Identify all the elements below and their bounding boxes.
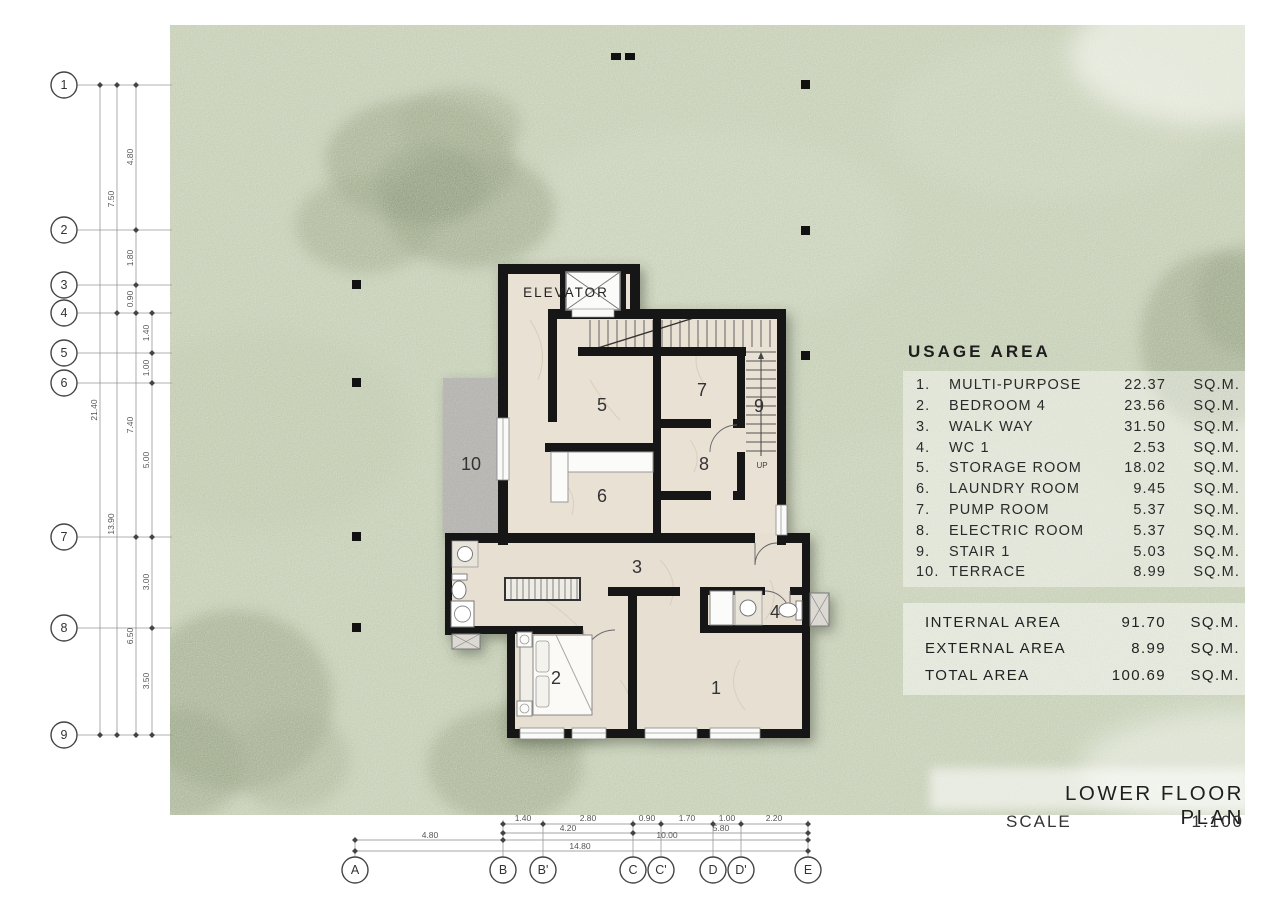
room-unit: SQ.M. <box>1166 399 1250 414</box>
row-number: 5. <box>903 461 949 476</box>
room-name: STORAGE ROOM <box>949 461 1102 476</box>
room-label-10: 10 <box>461 454 481 474</box>
dim-bottom-2-80: 2.80 <box>580 813 597 823</box>
usage-row-6: 6. LAUNDRY ROOM 9.45 SQ.M. <box>903 482 1250 497</box>
area-totals-panel: INTERNAL AREA 91.70 SQ.M. EXTERNAL AREA … <box>903 603 1250 695</box>
grid-label-a: A <box>351 863 360 877</box>
room-unit: SQ.M. <box>1166 441 1250 456</box>
room-unit: SQ.M. <box>1166 565 1250 580</box>
row-number: 8. <box>903 524 949 539</box>
dim-bottom-4-20: 4.20 <box>560 823 577 833</box>
row-number: 7. <box>903 503 949 518</box>
dim-bottom-0-90: 0.90 <box>639 813 656 823</box>
room-unit: SQ.M. <box>1166 378 1250 393</box>
up-label: UP <box>756 461 767 470</box>
room-name: PUMP ROOM <box>949 503 1102 518</box>
dim-left-0-90: 0.90 <box>125 290 135 307</box>
dim-bottom-14-80: 14.80 <box>569 841 591 851</box>
room-label-6: 6 <box>597 486 607 506</box>
dim-left-3-00: 3.00 <box>141 573 151 590</box>
usage-row-5: 5. STORAGE ROOM 18.02 SQ.M. <box>903 461 1250 476</box>
room-label-3: 3 <box>632 557 642 577</box>
dim-left-1-80: 1.80 <box>125 249 135 266</box>
room-name: LAUNDRY ROOM <box>949 482 1102 497</box>
room-area: 5.37 <box>1102 524 1166 539</box>
room-unit: SQ.M. <box>1166 482 1250 497</box>
usage-row-8: 8. ELECTRIC ROOM 5.37 SQ.M. <box>903 524 1250 539</box>
total-unit: SQ.M. <box>1166 615 1250 630</box>
grid-label-2: 2 <box>61 223 68 237</box>
room-label-7: 7 <box>697 380 707 400</box>
room-label-1: 1 <box>711 678 721 698</box>
dim-bottom-1-40: 1.40 <box>515 813 532 823</box>
room-area: 5.03 <box>1102 545 1166 560</box>
row-number: 9. <box>903 545 949 560</box>
grid-bubbles-left: 1 2 3 4 5 6 7 8 9 <box>51 72 77 748</box>
total-row-external: EXTERNAL AREA 8.99 SQ.M. <box>903 641 1250 656</box>
grid-label-e: E <box>804 863 812 877</box>
usage-row-10: 10. TERRACE 8.99 SQ.M. <box>903 565 1250 580</box>
room-unit: SQ.M. <box>1166 503 1250 518</box>
room-label-4: 4 <box>770 602 780 622</box>
row-number: 1. <box>903 378 949 393</box>
total-row-total: TOTAL AREA 100.69 SQ.M. <box>903 668 1250 683</box>
dim-left-4-80: 4.80 <box>125 148 135 165</box>
room-name: ELECTRIC ROOM <box>949 524 1102 539</box>
row-number: 6. <box>903 482 949 497</box>
total-name: EXTERNAL AREA <box>903 641 1096 656</box>
total-area: 8.99 <box>1096 641 1166 656</box>
room-unit: SQ.M. <box>1166 420 1250 435</box>
room-unit: SQ.M. <box>1166 461 1250 476</box>
elevator-label: ELEVATOR <box>523 285 609 300</box>
grid-label-7: 7 <box>61 530 68 544</box>
usage-row-3: 3. WALK WAY 31.50 SQ.M. <box>903 420 1250 435</box>
room-area: 9.45 <box>1102 482 1166 497</box>
room-label-9: 9 <box>754 396 764 416</box>
dim-bottom-4-80: 4.80 <box>422 830 439 840</box>
scale-label: SCALE <box>1006 812 1072 832</box>
row-number: 2. <box>903 399 949 414</box>
stair-down-flight <box>505 578 580 600</box>
dim-left-total: 21.40 <box>89 399 99 421</box>
dim-bottom-1-70: 1.70 <box>679 813 696 823</box>
total-row-internal: INTERNAL AREA 91.70 SQ.M. <box>903 615 1250 630</box>
room-name: MULTI-PURPOSE <box>949 378 1102 393</box>
grid-label-1: 1 <box>61 78 68 92</box>
room-label-2: 2 <box>551 668 561 688</box>
room-label-5: 5 <box>597 395 607 415</box>
grid-label-4: 4 <box>61 306 68 320</box>
plan-scale-row: SCALE 1:100 <box>1006 812 1244 832</box>
total-name: TOTAL AREA <box>903 668 1096 683</box>
usage-row-1: 1. MULTI-PURPOSE 22.37 SQ.M. <box>903 378 1250 393</box>
total-area: 100.69 <box>1096 668 1166 683</box>
dim-left-3-50: 3.50 <box>141 672 151 689</box>
scale-value: 1:100 <box>1191 812 1244 832</box>
room-area: 22.37 <box>1102 378 1166 393</box>
floor-plan-sheet: samphoas.com <box>0 0 1280 905</box>
total-unit: SQ.M. <box>1166 668 1250 683</box>
grid-label-6: 6 <box>61 376 68 390</box>
grid-label-b: B <box>499 863 507 877</box>
usage-row-9: 9. STAIR 1 5.03 SQ.M. <box>903 545 1250 560</box>
row-number: 3. <box>903 420 949 435</box>
dim-left-5-00: 5.00 <box>141 451 151 468</box>
dim-left-6-50: 6.50 <box>125 627 135 644</box>
dim-left-7-50: 7.50 <box>106 190 116 207</box>
room-unit: SQ.M. <box>1166 545 1250 560</box>
dim-bottom-1-00: 1.00 <box>719 813 736 823</box>
room-unit: SQ.M. <box>1166 524 1250 539</box>
total-name: INTERNAL AREA <box>903 615 1096 630</box>
room-area: 8.99 <box>1102 565 1166 580</box>
dim-bottom-10-00: 10.00 <box>656 830 678 840</box>
room-area: 2.53 <box>1102 441 1166 456</box>
grid-label-d-prime: D' <box>735 863 746 877</box>
room-label-8: 8 <box>699 454 709 474</box>
usage-area-heading: USAGE AREA <box>908 342 1051 362</box>
room-name: STAIR 1 <box>949 545 1102 560</box>
room-name: WC 1 <box>949 441 1102 456</box>
room-name: BEDROOM 4 <box>949 399 1102 414</box>
dim-left-13-90: 13.90 <box>106 513 116 535</box>
usage-row-7: 7. PUMP ROOM 5.37 SQ.M. <box>903 503 1250 518</box>
usage-row-2: 2. BEDROOM 4 23.56 SQ.M. <box>903 399 1250 414</box>
dim-left-7-40: 7.40 <box>125 416 135 433</box>
grid-label-d: D <box>708 863 717 877</box>
dim-left-1-40: 1.40 <box>141 324 151 341</box>
room-name: WALK WAY <box>949 420 1102 435</box>
total-area: 91.70 <box>1096 615 1166 630</box>
left-dimensions: 21.40 7.50 13.90 4.80 1.80 0.90 7.40 6.5… <box>89 148 151 689</box>
room-area: 18.02 <box>1102 461 1166 476</box>
grid-label-5: 5 <box>61 346 68 360</box>
grid-label-3: 3 <box>61 278 68 292</box>
usage-area-table: 1. MULTI-PURPOSE 22.37 SQ.M. 2. BEDROOM … <box>903 371 1250 587</box>
dim-bottom-2-20: 2.20 <box>766 813 783 823</box>
room-area: 31.50 <box>1102 420 1166 435</box>
row-number: 4. <box>903 441 949 456</box>
grid-label-c-prime: C' <box>655 863 666 877</box>
grid-label-b-prime: B' <box>538 863 549 877</box>
row-number: 10. <box>903 565 949 580</box>
grid-label-8: 8 <box>61 621 68 635</box>
grid-label-c: C <box>628 863 637 877</box>
grid-label-9: 9 <box>61 728 68 742</box>
dim-bottom-5-80: 5.80 <box>713 823 730 833</box>
dim-left-1-00: 1.00 <box>141 359 151 376</box>
room-area: 23.56 <box>1102 399 1166 414</box>
room-area: 5.37 <box>1102 503 1166 518</box>
total-unit: SQ.M. <box>1166 641 1250 656</box>
room-name: TERRACE <box>949 565 1102 580</box>
usage-row-4: 4. WC 1 2.53 SQ.M. <box>903 441 1250 456</box>
